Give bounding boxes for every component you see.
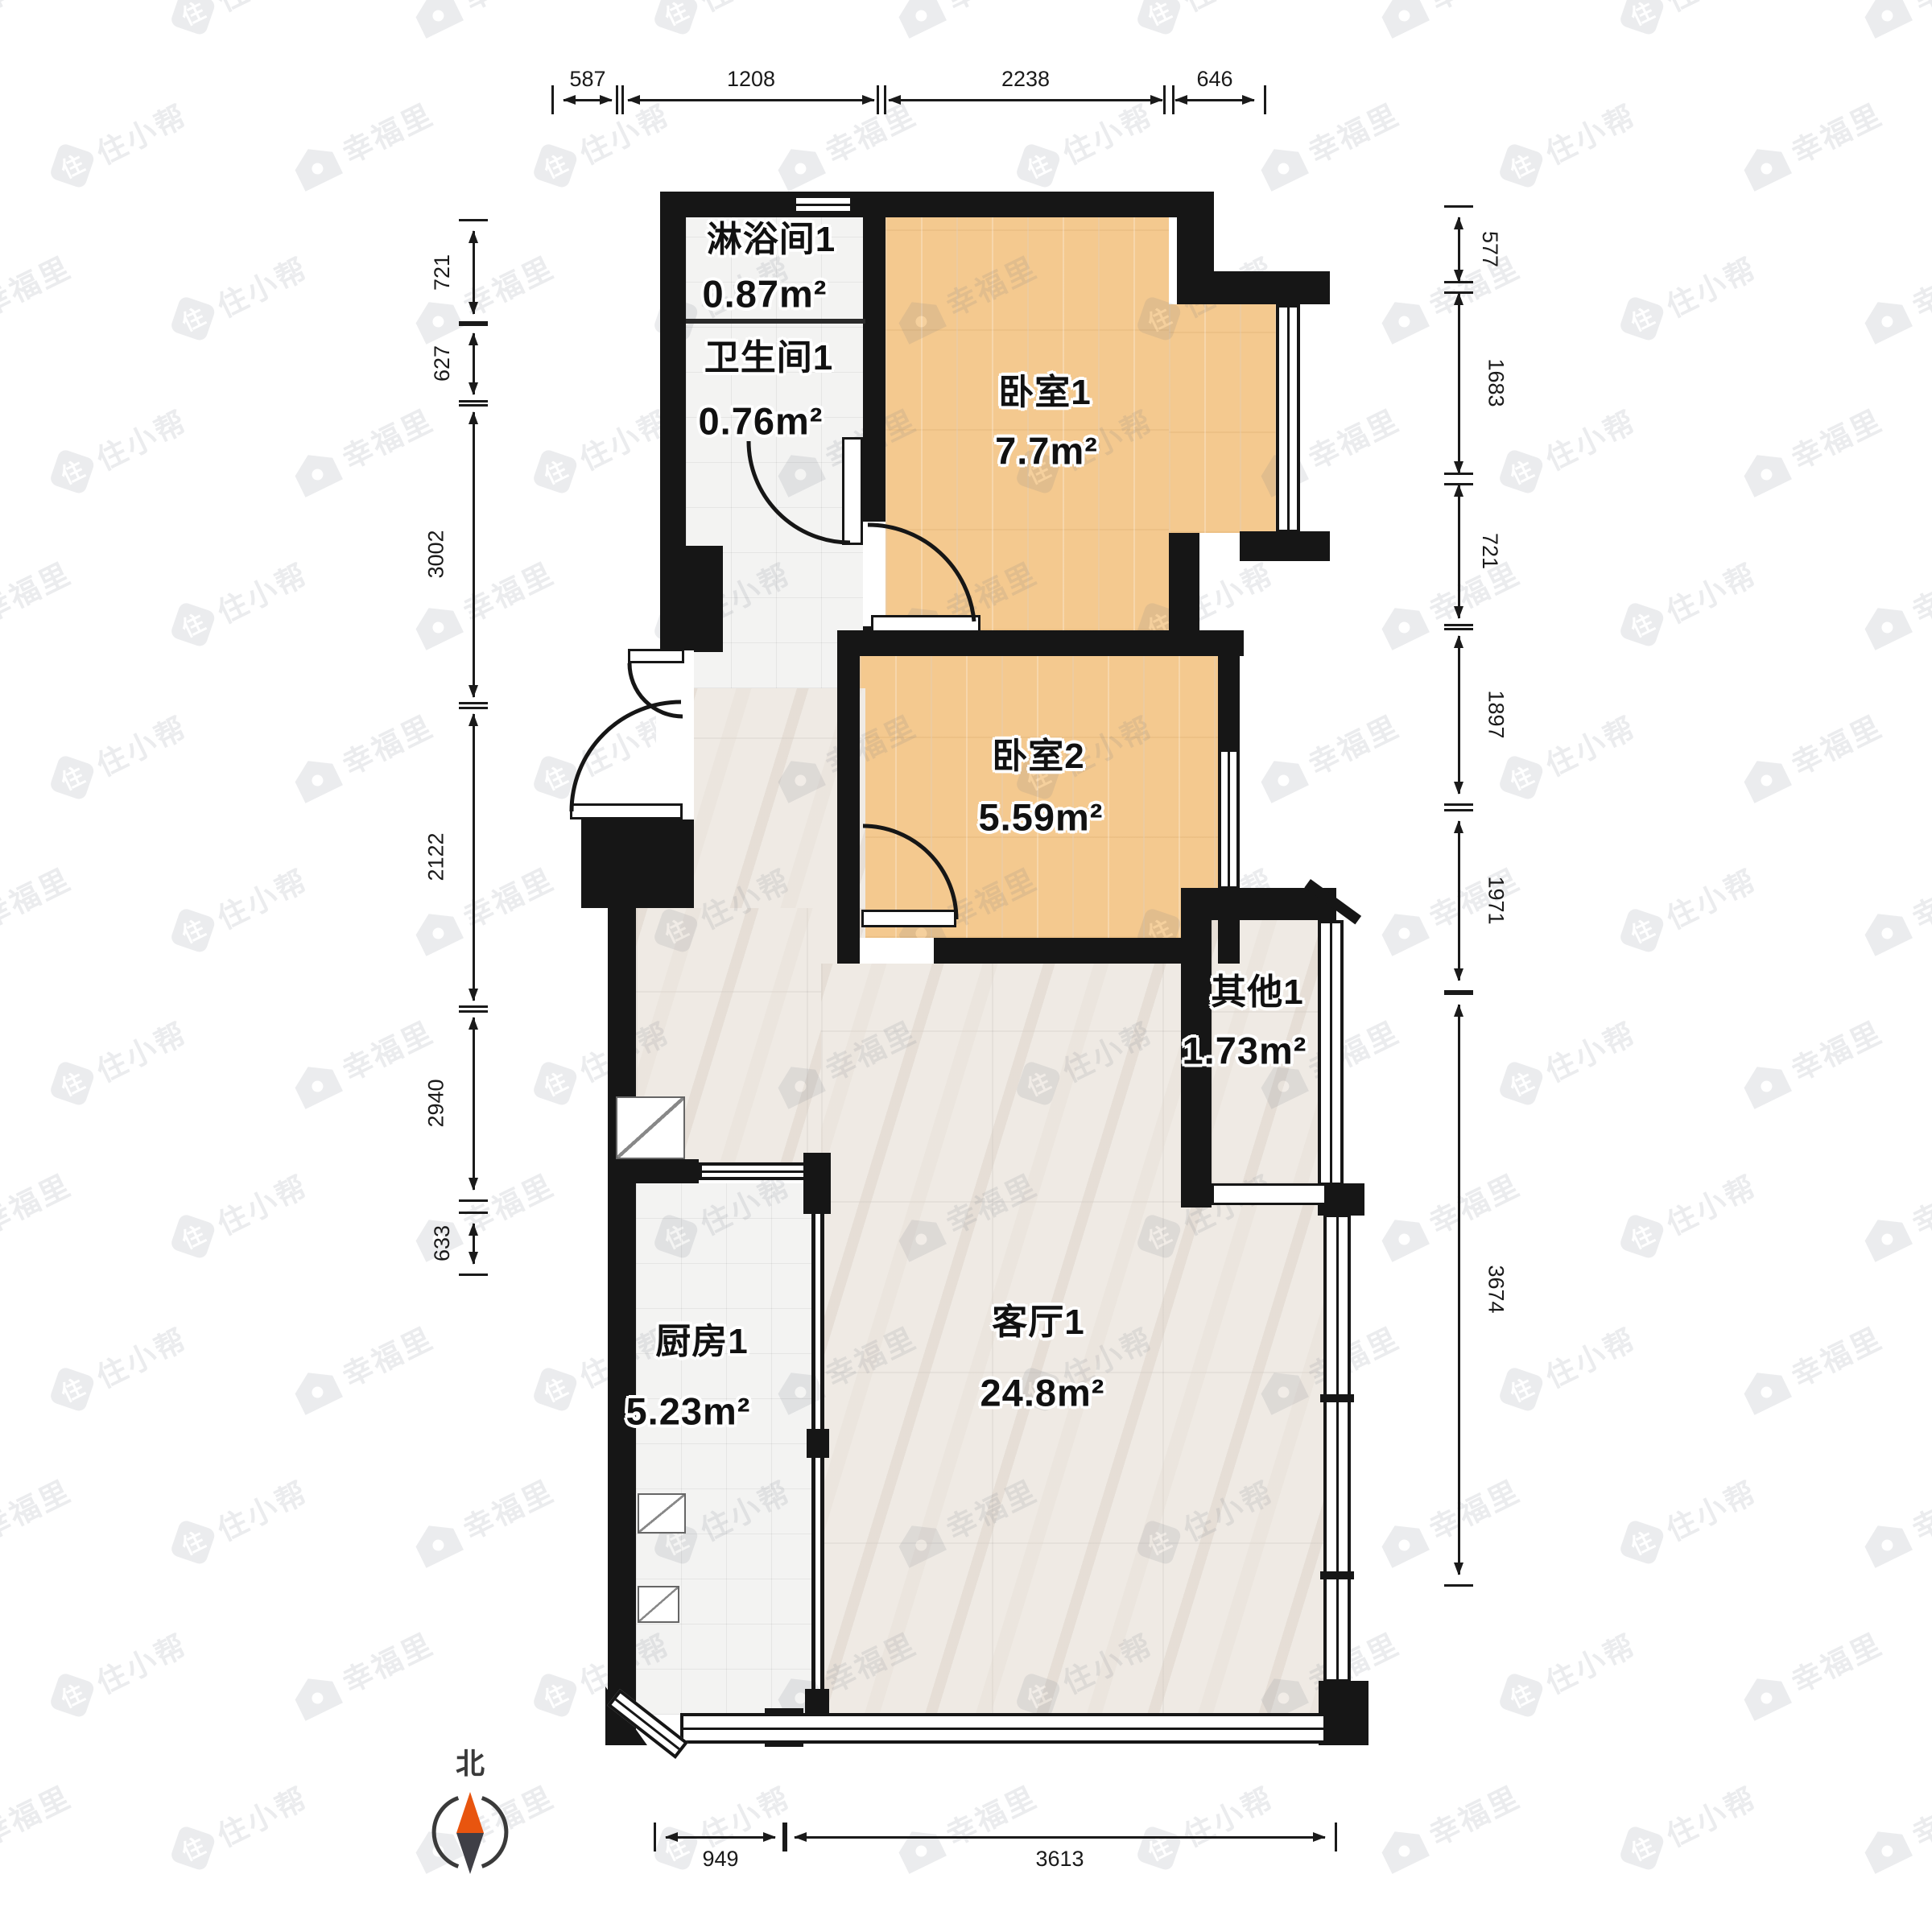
house-logo-icon	[1859, 1823, 1913, 1874]
zhuxiaobang-logo-icon: 住	[531, 1060, 578, 1107]
house-logo-icon	[410, 599, 464, 650]
watermark-brand-text: 幸福里	[0, 549, 78, 630]
zhuxiaobang-logo-icon: 住	[169, 907, 216, 954]
watermark-brand-text: 住小帮	[208, 857, 315, 938]
wall-kitchen-top	[636, 1159, 699, 1183]
watermark-brand-text: 住小帮	[88, 92, 194, 173]
watermark-brand-text: 住小帮	[1657, 245, 1764, 326]
watermark-brand-text: 住小帮	[571, 92, 677, 173]
watermark-brand-text: 幸福里	[938, 0, 1044, 19]
watermark-brand-text: 幸福里	[1783, 1314, 1889, 1395]
room-label-kitchen: 厨房1	[655, 1312, 748, 1364]
bedroom2-door-opening	[860, 938, 934, 964]
wall-bedroom1-bay-top	[1214, 271, 1330, 304]
wall-toilet-bedroom1	[863, 192, 885, 522]
house-logo-icon	[1859, 293, 1913, 345]
watermark-brand-text: 幸福里	[1904, 855, 1932, 936]
watermark-brand-text: 幸福里	[938, 1773, 1044, 1854]
bathroom-door-leaf	[842, 437, 863, 545]
watermark-brand-text: 幸福里	[0, 0, 78, 19]
house-logo-icon	[1376, 293, 1430, 345]
house-logo-icon	[1738, 446, 1792, 497]
wall-entry-lower-block	[581, 817, 694, 908]
room-area-bedroom1: 7.7m²	[995, 429, 1098, 473]
watermark-brand-text: 幸福里	[1904, 1161, 1932, 1242]
watermark-brand-text: 住小帮	[1174, 0, 1281, 20]
window-bottom-band	[680, 1713, 1327, 1744]
watermark-brand-text: 幸福里	[1300, 396, 1406, 477]
entry-door-leaf-large	[570, 803, 683, 819]
house-logo-icon	[1738, 1364, 1792, 1415]
zhuxiaobang-logo-icon: 住	[48, 754, 95, 801]
wall-left-upper	[660, 192, 686, 546]
watermark-brand-text: 住小帮	[1537, 1009, 1643, 1091]
entry-door-leaf-small	[628, 649, 684, 663]
watermark-brand-text: 住小帮	[1657, 1774, 1764, 1856]
wall-bedroom2-bottom	[934, 938, 1181, 964]
house-logo-icon	[410, 0, 464, 39]
house-logo-icon	[289, 752, 343, 803]
wall-entry-jog	[660, 546, 723, 652]
watermark-brand-text: 幸福里	[1421, 0, 1527, 19]
room-label-toilet: 卫生间1	[704, 328, 833, 380]
house-logo-icon	[1255, 140, 1309, 192]
room-area-toilet: 0.76m²	[699, 399, 824, 444]
zhuxiaobang-logo-icon: 住	[531, 1672, 578, 1719]
watermark-brand-text: 幸福里	[455, 855, 561, 936]
floor-plan-canvas: 幸福里住住小帮幸福里住住小帮幸福里住住小帮幸福里住住小帮幸福里住住小帮幸福里住住…	[0, 0, 1932, 1932]
room-label-bedroom2: 卧室2	[992, 727, 1084, 778]
zhuxiaobang-logo-icon: 住	[531, 1366, 578, 1413]
house-logo-icon	[1255, 752, 1309, 803]
house-logo-icon	[289, 446, 343, 497]
watermark-brand-text: 幸福里	[334, 396, 440, 477]
room-area-other: 1.73m²	[1183, 1029, 1307, 1073]
watermark-brand-text: 幸福里	[1904, 1773, 1932, 1854]
watermark-brand-text: 幸福里	[1421, 1773, 1527, 1854]
house-logo-icon	[1859, 905, 1913, 956]
watermark-brand-text: 幸福里	[0, 855, 78, 936]
watermark-brand-text: 住小帮	[1054, 92, 1160, 173]
watermark-brand-text: 住小帮	[1657, 857, 1764, 938]
window-living-right-mullion-1	[1320, 1394, 1354, 1402]
zhuxiaobang-logo-icon: 住	[531, 142, 578, 189]
watermark-brand-text: 幸福里	[455, 0, 561, 19]
house-logo-icon	[289, 1670, 343, 1721]
house-logo-icon	[1376, 1823, 1430, 1874]
watermark-brand-text: 幸福里	[1421, 1467, 1527, 1548]
wall-bedroom1-right-lower	[1169, 533, 1199, 656]
zhuxiaobang-logo-icon: 住	[48, 1060, 95, 1107]
house-logo-icon	[1738, 1670, 1792, 1721]
wall-bedroom2-left	[837, 630, 860, 964]
appliance-corridor	[616, 1096, 685, 1159]
zhuxiaobang-logo-icon: 住	[1618, 295, 1665, 342]
watermark-brand-text: 住小帮	[88, 398, 194, 479]
wall-kitchen-left	[608, 908, 636, 1743]
house-logo-icon	[1738, 140, 1792, 192]
watermark-brand-text: 住小帮	[1537, 92, 1643, 173]
watermark-brand-text: 住小帮	[208, 1468, 315, 1550]
watermark-brand-text: 幸福里	[0, 1161, 78, 1242]
watermark-brand-text: 住小帮	[1174, 1774, 1281, 1856]
zhuxiaobang-logo-icon: 住	[169, 0, 216, 36]
bedroom2-door-leaf	[861, 910, 956, 927]
room-area-living: 24.8m²	[980, 1371, 1105, 1415]
watermark-brand-text: 幸福里	[1421, 243, 1527, 324]
watermark-brand-text: 住小帮	[1657, 1468, 1764, 1550]
watermark-brand-text: 幸福里	[0, 243, 78, 324]
bedroom1-door-opening	[863, 522, 885, 626]
watermark-brand-text: 住小帮	[208, 0, 315, 20]
window-kitchen-slide	[699, 1162, 807, 1180]
house-logo-icon	[1376, 1211, 1430, 1262]
watermark-brand-text: 幸福里	[455, 1467, 561, 1548]
divider-shower-toilet	[686, 319, 865, 324]
watermark-brand-text: 幸福里	[0, 1773, 78, 1854]
compass-north-label: 北	[456, 1740, 485, 1782]
watermark-brand-text: 住小帮	[208, 1774, 315, 1856]
house-logo-icon	[1738, 752, 1792, 803]
zhuxiaobang-logo-icon: 住	[1497, 448, 1544, 495]
house-logo-icon	[289, 1058, 343, 1109]
window-other-bay	[1318, 920, 1344, 1186]
window-bedroom1-bay	[1276, 304, 1300, 533]
watermark-brand-text: 住小帮	[1537, 1621, 1643, 1703]
watermark-brand-text: 幸福里	[455, 549, 561, 630]
watermark-brand-text: 住小帮	[208, 551, 315, 632]
zhuxiaobang-logo-icon: 住	[48, 142, 95, 189]
watermark-brand-text: 住小帮	[208, 245, 315, 326]
wall-bedroom1-notch-column	[1177, 192, 1214, 304]
partition-mid-block	[807, 1429, 829, 1458]
wall-bedroom2-right-upper	[1218, 656, 1240, 753]
watermark-brand-text: 住小帮	[1657, 1162, 1764, 1244]
zhuxiaobang-logo-icon: 住	[1497, 1366, 1544, 1413]
wall-kitchen-top-pillar	[803, 1153, 831, 1214]
watermark-brand-text: 幸福里	[334, 1620, 440, 1701]
room-area-bedroom2: 5.59m²	[979, 795, 1104, 840]
bedroom1-bay-floor	[1169, 304, 1276, 533]
window-living-right	[1323, 1214, 1351, 1682]
watermark-brand-text: 幸福里	[334, 702, 440, 783]
watermark-brand-text: 住小帮	[1537, 704, 1643, 785]
watermark-brand-text: 住小帮	[88, 1315, 194, 1397]
house-logo-icon	[772, 140, 826, 192]
watermark-brand-text: 幸福里	[1783, 396, 1889, 477]
zhuxiaobang-logo-icon: 住	[1618, 1519, 1665, 1566]
zhuxiaobang-logo-icon: 住	[1135, 0, 1182, 36]
bedroom1-door-leaf	[871, 615, 980, 633]
house-logo-icon	[289, 140, 343, 192]
watermark-brand-text: 幸福里	[1783, 702, 1889, 783]
appliance-kitchen-1	[638, 1493, 686, 1534]
house-logo-icon	[1859, 1211, 1913, 1262]
zhuxiaobang-logo-icon: 住	[169, 1213, 216, 1260]
watermark-brand-text: 住小帮	[1657, 551, 1764, 632]
watermark-brand-text: 住小帮	[1537, 398, 1643, 479]
kitchen-floor	[636, 1183, 811, 1715]
entry-door-opening	[656, 650, 694, 819]
zhuxiaobang-logo-icon: 住	[169, 1519, 216, 1566]
house-logo-icon	[410, 1517, 464, 1568]
room-label-bedroom1: 卧室1	[998, 363, 1091, 415]
room-label-shower: 淋浴间1	[707, 210, 836, 262]
room-area-shower: 0.87m²	[703, 272, 828, 316]
watermark-brand-text: 住小帮	[208, 1162, 315, 1244]
house-logo-icon	[1859, 1517, 1913, 1568]
watermark-brand-text: 住小帮	[1537, 1315, 1643, 1397]
zhuxiaobang-logo-icon: 住	[1618, 601, 1665, 648]
watermark-brand-text: 幸福里	[1783, 1008, 1889, 1089]
watermark-brand-text: 幸福里	[1300, 90, 1406, 171]
watermark-brand-text: 幸福里	[1421, 549, 1527, 630]
watermark-brand-text: 住小帮	[1657, 0, 1764, 20]
zhuxiaobang-logo-icon: 住	[169, 601, 216, 648]
watermark-brand-text: 住小帮	[88, 1621, 194, 1703]
partition-bottom-block	[805, 1689, 829, 1716]
watermark-brand-text: 幸福里	[1783, 1620, 1889, 1701]
zhuxiaobang-logo-icon: 住	[1497, 1060, 1544, 1107]
house-logo-icon	[1738, 1058, 1792, 1109]
room-label-other: 其他1	[1211, 963, 1303, 1014]
house-logo-icon	[410, 905, 464, 956]
wall-bedroom1-bay-bottom	[1240, 531, 1330, 561]
watermark-brand-text: 幸福里	[334, 1008, 440, 1089]
zhuxiaobang-logo-icon: 住	[1497, 1672, 1544, 1719]
zhuxiaobang-logo-icon: 住	[652, 0, 699, 36]
house-logo-icon	[1376, 1517, 1430, 1568]
watermark-brand-text: 住小帮	[88, 704, 194, 785]
compass-icon	[425, 1787, 515, 1877]
zhuxiaobang-logo-icon: 住	[1618, 907, 1665, 954]
appliance-kitchen-2	[638, 1586, 679, 1623]
watermark-brand-text: 幸福里	[334, 1314, 440, 1395]
watermark-brand-text: 幸福里	[1904, 549, 1932, 630]
zhuxiaobang-logo-icon: 住	[1618, 1825, 1665, 1872]
zhuxiaobang-logo-icon: 住	[48, 1366, 95, 1413]
house-logo-icon	[1376, 0, 1430, 39]
watermark-brand-text: 幸福里	[1421, 855, 1527, 936]
zhuxiaobang-logo-icon: 住	[1497, 754, 1544, 801]
watermark-brand-text: 幸福里	[1300, 702, 1406, 783]
window-bedroom2-right	[1218, 749, 1240, 890]
zhuxiaobang-logo-icon: 住	[1618, 1213, 1665, 1260]
house-logo-icon	[410, 293, 464, 345]
watermark-brand-text: 幸福里	[1783, 90, 1889, 171]
watermark-brand-text: 住小帮	[691, 0, 798, 20]
window-living-right-mullion-2	[1320, 1571, 1354, 1579]
watermark-brand-text: 幸福里	[0, 1467, 78, 1548]
watermark-brand-text: 幸福里	[1904, 243, 1932, 324]
house-logo-icon	[1859, 599, 1913, 650]
room-area-kitchen: 5.23m²	[626, 1389, 751, 1434]
zhuxiaobang-logo-icon: 住	[531, 448, 578, 495]
house-logo-icon	[289, 1364, 343, 1415]
other-room-sill	[1212, 1183, 1327, 1205]
watermark-brand-text: 幸福里	[334, 90, 440, 171]
watermark-brand-text: 住小帮	[88, 1009, 194, 1091]
house-logo-icon	[1376, 599, 1430, 650]
room-label-living: 客厅1	[992, 1293, 1084, 1344]
house-logo-icon	[1859, 0, 1913, 39]
zhuxiaobang-logo-icon: 住	[1497, 142, 1544, 189]
zhuxiaobang-logo-icon: 住	[1618, 0, 1665, 36]
house-logo-icon	[893, 0, 947, 39]
zhuxiaobang-logo-icon: 住	[169, 1825, 216, 1872]
zhuxiaobang-logo-icon: 住	[48, 448, 95, 495]
zhuxiaobang-logo-icon: 住	[1014, 142, 1061, 189]
zhuxiaobang-logo-icon: 住	[48, 1672, 95, 1719]
watermark-brand-text: 幸福里	[1421, 1161, 1527, 1242]
bedroom1-floor	[885, 217, 1169, 630]
zhuxiaobang-logo-icon: 住	[169, 295, 216, 342]
watermark-brand-text: 幸福里	[1904, 0, 1932, 19]
watermark-brand-text: 幸福里	[1904, 1467, 1932, 1548]
house-logo-icon	[1376, 905, 1430, 956]
zhuxiaobang-logo-icon: 住	[531, 754, 578, 801]
